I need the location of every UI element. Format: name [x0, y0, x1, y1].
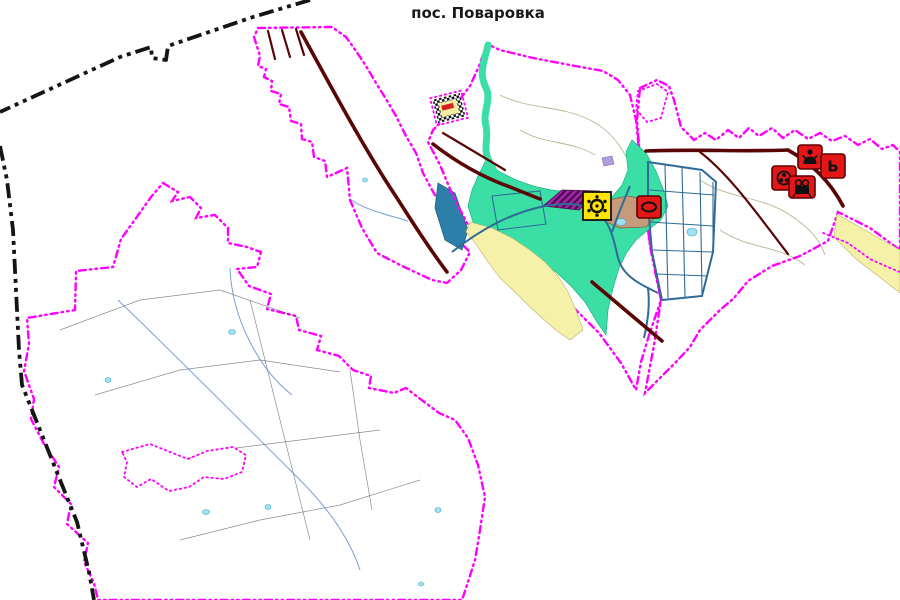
map-canvas[interactable]: Ь пос. Поваровка [0, 0, 900, 600]
letter-icon: Ь [821, 154, 845, 178]
gear-icon [583, 192, 611, 220]
person-icon [798, 145, 822, 169]
genplan-map[interactable]: Ь [0, 0, 900, 600]
projector-icon [789, 176, 815, 198]
lavender-patch [602, 156, 614, 166]
oval-icon [637, 196, 661, 218]
map-background [0, 0, 900, 600]
svg-text:Ь: Ь [827, 158, 838, 176]
map-title: пос. Поваровка [411, 4, 545, 22]
